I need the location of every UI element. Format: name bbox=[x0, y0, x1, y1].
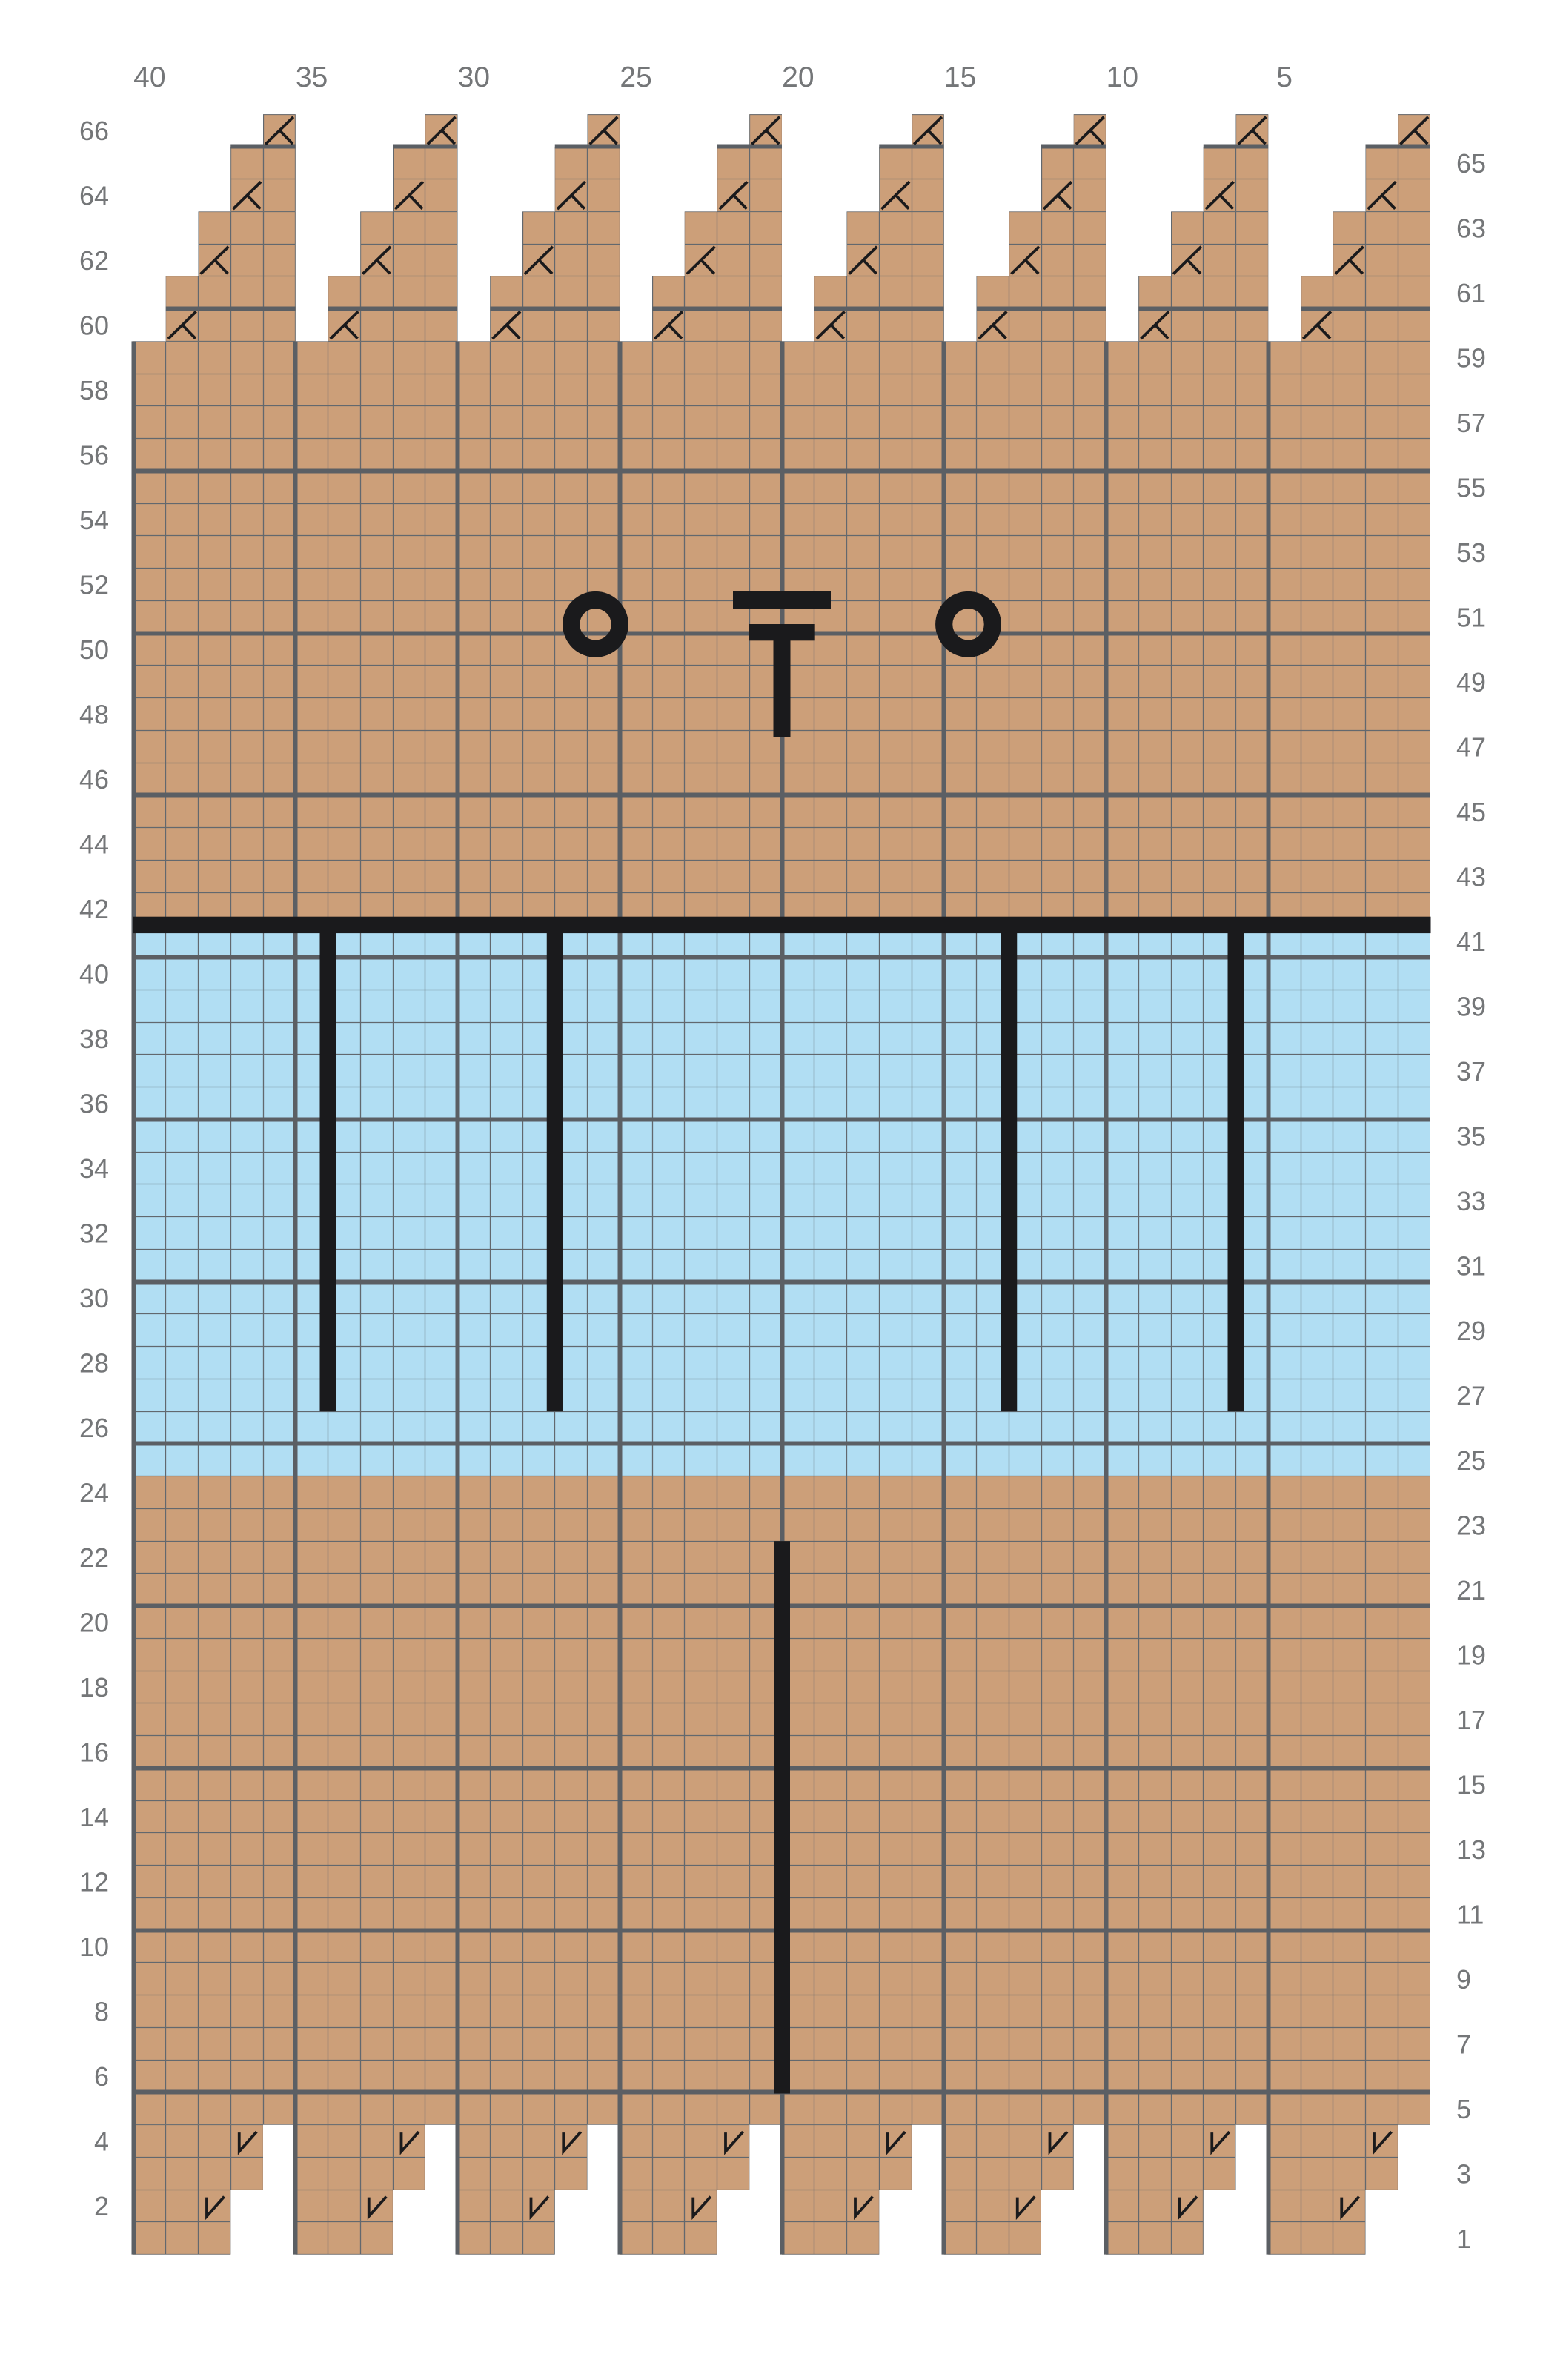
svg-text:14: 14 bbox=[79, 1802, 109, 1832]
svg-text:23: 23 bbox=[1456, 1510, 1486, 1540]
svg-text:37: 37 bbox=[1456, 1056, 1486, 1087]
svg-text:51: 51 bbox=[1456, 602, 1486, 632]
svg-text:8: 8 bbox=[94, 1997, 109, 2027]
svg-text:25: 25 bbox=[1456, 1445, 1486, 1476]
svg-text:47: 47 bbox=[1456, 732, 1486, 762]
svg-text:44: 44 bbox=[79, 829, 109, 860]
svg-text:50: 50 bbox=[79, 634, 109, 665]
svg-text:16: 16 bbox=[79, 1737, 109, 1768]
svg-text:24: 24 bbox=[79, 1478, 109, 1508]
svg-text:29: 29 bbox=[1456, 1316, 1486, 1346]
svg-text:10: 10 bbox=[1106, 62, 1138, 93]
svg-text:63: 63 bbox=[1456, 213, 1486, 243]
svg-text:19: 19 bbox=[1456, 1640, 1486, 1670]
svg-text:33: 33 bbox=[1456, 1186, 1486, 1216]
svg-text:57: 57 bbox=[1456, 408, 1486, 438]
svg-text:43: 43 bbox=[1456, 861, 1486, 892]
svg-text:22: 22 bbox=[79, 1542, 109, 1573]
svg-text:32: 32 bbox=[79, 1219, 109, 1249]
svg-text:18: 18 bbox=[79, 1672, 109, 1703]
svg-text:53: 53 bbox=[1456, 537, 1486, 568]
svg-text:45: 45 bbox=[1456, 797, 1486, 827]
svg-text:58: 58 bbox=[79, 375, 109, 405]
svg-text:21: 21 bbox=[1456, 1575, 1486, 1605]
svg-text:6: 6 bbox=[94, 2061, 109, 2092]
svg-text:17: 17 bbox=[1456, 1705, 1486, 1735]
svg-text:20: 20 bbox=[79, 1608, 109, 1638]
svg-text:30: 30 bbox=[79, 1283, 109, 1313]
svg-text:26: 26 bbox=[79, 1413, 109, 1443]
svg-text:40: 40 bbox=[79, 959, 109, 990]
svg-text:59: 59 bbox=[1456, 342, 1486, 373]
svg-text:27: 27 bbox=[1456, 1380, 1486, 1411]
svg-text:52: 52 bbox=[79, 570, 109, 600]
svg-text:9: 9 bbox=[1456, 1964, 1471, 1995]
svg-text:35: 35 bbox=[1456, 1121, 1486, 1151]
svg-text:64: 64 bbox=[79, 181, 109, 211]
svg-text:35: 35 bbox=[296, 62, 328, 93]
svg-text:61: 61 bbox=[1456, 278, 1486, 308]
svg-text:10: 10 bbox=[79, 1932, 109, 1962]
svg-text:5: 5 bbox=[1276, 62, 1293, 93]
svg-text:15: 15 bbox=[1456, 1769, 1486, 1800]
svg-text:15: 15 bbox=[944, 62, 976, 93]
svg-text:62: 62 bbox=[79, 245, 109, 276]
svg-text:39: 39 bbox=[1456, 991, 1486, 1021]
svg-text:12: 12 bbox=[79, 1867, 109, 1897]
svg-text:48: 48 bbox=[79, 700, 109, 730]
svg-text:42: 42 bbox=[79, 894, 109, 924]
svg-text:60: 60 bbox=[79, 311, 109, 341]
svg-text:36: 36 bbox=[79, 1089, 109, 1119]
svg-text:1: 1 bbox=[1456, 2224, 1471, 2254]
svg-text:66: 66 bbox=[79, 116, 109, 146]
svg-text:20: 20 bbox=[782, 62, 814, 93]
svg-text:34: 34 bbox=[79, 1153, 109, 1184]
svg-text:28: 28 bbox=[79, 1348, 109, 1379]
svg-text:30: 30 bbox=[458, 62, 490, 93]
svg-text:49: 49 bbox=[1456, 667, 1486, 697]
svg-text:13: 13 bbox=[1456, 1834, 1486, 1865]
svg-text:54: 54 bbox=[79, 505, 109, 535]
svg-text:7: 7 bbox=[1456, 2029, 1471, 2059]
svg-text:38: 38 bbox=[79, 1024, 109, 1054]
svg-text:2: 2 bbox=[94, 2191, 109, 2221]
svg-text:5: 5 bbox=[1456, 2094, 1471, 2124]
svg-text:11: 11 bbox=[1456, 1899, 1484, 1929]
svg-text:41: 41 bbox=[1456, 927, 1486, 957]
svg-text:31: 31 bbox=[1456, 1250, 1486, 1281]
svg-text:65: 65 bbox=[1456, 148, 1486, 179]
svg-text:55: 55 bbox=[1456, 472, 1486, 503]
svg-text:56: 56 bbox=[79, 440, 109, 471]
svg-text:40: 40 bbox=[133, 62, 165, 93]
svg-text:3: 3 bbox=[1456, 2158, 1471, 2189]
svg-text:46: 46 bbox=[79, 764, 109, 795]
svg-text:25: 25 bbox=[620, 62, 651, 93]
svg-text:4: 4 bbox=[94, 2127, 109, 2157]
